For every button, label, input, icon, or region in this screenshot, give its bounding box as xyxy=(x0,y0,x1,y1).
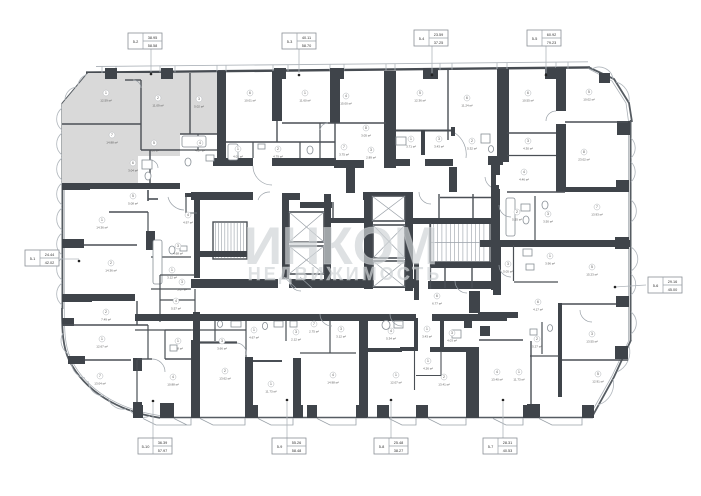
svg-text:12.59 м²: 12.59 м² xyxy=(100,99,111,103)
svg-text:8: 8 xyxy=(583,150,585,154)
svg-text:4.68 м²: 4.68 м² xyxy=(173,252,183,256)
svg-text:5-4: 5-4 xyxy=(419,36,425,41)
svg-text:11.60 м²: 11.60 м² xyxy=(299,99,310,103)
svg-text:4: 4 xyxy=(345,94,347,98)
svg-text:3.71 м²: 3.71 м² xyxy=(406,145,416,149)
svg-text:5: 5 xyxy=(419,91,421,95)
svg-text:45.00: 45.00 xyxy=(668,288,678,292)
svg-text:5-8: 5-8 xyxy=(379,444,385,449)
svg-text:15.23 м²: 15.23 м² xyxy=(586,273,597,277)
svg-text:28.31: 28.31 xyxy=(503,441,513,445)
svg-text:79.23: 79.23 xyxy=(547,41,557,45)
svg-text:3: 3 xyxy=(507,262,509,266)
svg-text:14.98 м²: 14.98 м² xyxy=(327,381,338,385)
svg-text:5-10: 5-10 xyxy=(142,444,151,449)
svg-text:38.95: 38.95 xyxy=(148,36,158,40)
svg-text:НЕДВИЖИМОСТЬ: НЕДВИЖИМОСТЬ xyxy=(248,264,442,284)
svg-text:7: 7 xyxy=(99,374,101,378)
svg-text:4: 4 xyxy=(332,373,334,377)
svg-text:1: 1 xyxy=(177,339,179,343)
svg-text:2: 2 xyxy=(224,369,226,373)
svg-text:2: 2 xyxy=(443,375,445,379)
svg-text:11.73 м²: 11.73 м² xyxy=(265,390,276,394)
svg-text:11.09 м²: 11.09 м² xyxy=(152,104,163,108)
svg-text:5-5: 5-5 xyxy=(532,36,538,41)
svg-text:4.01 м²: 4.01 м² xyxy=(233,155,243,159)
svg-text:10.02 м²: 10.02 м² xyxy=(583,98,594,102)
svg-text:3: 3 xyxy=(177,244,179,248)
svg-text:13.41 м²: 13.41 м² xyxy=(438,383,449,387)
svg-text:5.07 м²: 5.07 м² xyxy=(177,288,187,292)
svg-text:4.17 м²: 4.17 м² xyxy=(533,308,543,312)
svg-text:7: 7 xyxy=(313,322,315,326)
svg-text:4.87 м²: 4.87 м² xyxy=(195,149,205,153)
svg-text:2: 2 xyxy=(471,139,473,143)
svg-text:2.75 м²: 2.75 м² xyxy=(309,330,319,334)
svg-text:3.75 м²: 3.75 м² xyxy=(339,153,349,157)
svg-text:3: 3 xyxy=(370,148,372,152)
svg-text:23.02 м²: 23.02 м² xyxy=(578,158,589,162)
svg-text:1: 1 xyxy=(270,382,272,386)
svg-text:6: 6 xyxy=(537,300,539,304)
svg-text:3.43 м²: 3.43 м² xyxy=(434,145,444,149)
svg-text:5.57 м²: 5.57 м² xyxy=(171,307,181,311)
svg-text:5.55 м²: 5.55 м² xyxy=(512,218,522,222)
svg-text:5.08 м²: 5.08 м² xyxy=(128,202,138,206)
svg-text:60.92: 60.92 xyxy=(547,33,557,37)
svg-text:58.70: 58.70 xyxy=(302,44,312,48)
svg-text:6: 6 xyxy=(527,91,529,95)
svg-text:3.12 м²: 3.12 м² xyxy=(336,335,346,339)
svg-text:2: 2 xyxy=(157,96,159,100)
svg-text:2: 2 xyxy=(105,310,107,314)
svg-text:13.62 м²: 13.62 м² xyxy=(219,377,230,381)
svg-text:55.26: 55.26 xyxy=(292,441,302,445)
svg-text:4.79 м²: 4.79 м² xyxy=(273,155,283,159)
svg-text:3: 3 xyxy=(181,280,183,284)
svg-text:3.50 м²: 3.50 м² xyxy=(543,220,553,224)
svg-text:12.07 м²: 12.07 м² xyxy=(390,381,401,385)
svg-text:14.36 м²: 14.36 м² xyxy=(96,226,107,230)
svg-text:40.11: 40.11 xyxy=(302,36,311,40)
svg-text:1: 1 xyxy=(171,268,173,272)
svg-text:5-1: 5-1 xyxy=(30,256,36,261)
svg-text:40.53: 40.53 xyxy=(503,449,513,453)
svg-text:5-9: 5-9 xyxy=(277,444,283,449)
svg-text:7.49 м²: 7.49 м² xyxy=(101,318,111,322)
svg-text:3.96 м²: 3.96 м² xyxy=(545,262,555,266)
svg-text:3: 3 xyxy=(198,97,200,101)
svg-text:3.43 м²: 3.43 м² xyxy=(422,335,432,339)
svg-text:5-2: 5-2 xyxy=(133,39,139,44)
svg-text:10.01 м²: 10.01 м² xyxy=(244,99,255,103)
svg-text:4.30 м²: 4.30 м² xyxy=(523,147,533,151)
svg-text:4.46 м²: 4.46 м² xyxy=(519,178,529,182)
svg-text:3.04 м²: 3.04 м² xyxy=(128,169,138,173)
svg-text:5-3: 5-3 xyxy=(287,39,293,44)
svg-text:4: 4 xyxy=(496,370,498,374)
svg-text:2.12 м²: 2.12 м² xyxy=(291,338,301,342)
svg-text:3: 3 xyxy=(547,212,549,216)
svg-text:4: 4 xyxy=(199,141,201,145)
svg-text:36.39: 36.39 xyxy=(158,441,168,445)
svg-text:2: 2 xyxy=(516,210,518,214)
svg-text:3.12 м²: 3.12 м² xyxy=(167,276,177,280)
svg-text:5.86 м²: 5.86 м² xyxy=(149,149,159,153)
svg-text:2: 2 xyxy=(110,261,112,265)
svg-text:2.89 м²: 2.89 м² xyxy=(366,156,376,160)
svg-text:1: 1 xyxy=(253,328,255,332)
svg-text:5.27 м²: 5.27 м² xyxy=(532,345,542,349)
svg-text:1: 1 xyxy=(105,91,107,95)
svg-text:1: 1 xyxy=(101,218,103,222)
svg-text:4.26 м²: 4.26 м² xyxy=(423,367,433,371)
svg-text:12.91 м²: 12.91 м² xyxy=(592,380,603,384)
svg-text:3: 3 xyxy=(295,330,297,334)
svg-text:5: 5 xyxy=(597,372,599,376)
svg-text:3: 3 xyxy=(451,331,453,335)
svg-text:5.05 м²: 5.05 м² xyxy=(503,270,513,274)
svg-text:24.44: 24.44 xyxy=(45,253,55,257)
svg-text:38.27: 38.27 xyxy=(394,449,404,453)
svg-text:5: 5 xyxy=(591,265,593,269)
svg-text:14.88 м²: 14.88 м² xyxy=(106,141,117,145)
svg-text:6: 6 xyxy=(436,294,438,298)
svg-text:7: 7 xyxy=(596,205,598,209)
svg-text:15.00 м²: 15.00 м² xyxy=(340,102,351,106)
svg-text:6: 6 xyxy=(249,91,251,95)
svg-text:3.66 м²: 3.66 м² xyxy=(217,347,227,351)
svg-text:4: 4 xyxy=(172,375,174,379)
svg-text:13.40 м²: 13.40 м² xyxy=(491,378,502,382)
svg-text:1: 1 xyxy=(518,370,520,374)
svg-text:5: 5 xyxy=(153,141,155,145)
svg-text:25.48: 25.48 xyxy=(394,441,404,445)
svg-text:4.97 м²: 4.97 м² xyxy=(183,221,193,225)
svg-text:4: 4 xyxy=(390,329,392,333)
svg-text:1: 1 xyxy=(427,359,429,363)
svg-text:3: 3 xyxy=(340,327,342,331)
svg-text:3: 3 xyxy=(591,332,593,336)
svg-text:8: 8 xyxy=(365,126,367,130)
svg-text:3: 3 xyxy=(221,339,223,343)
svg-text:5.02 м²: 5.02 м² xyxy=(194,105,204,109)
svg-text:4: 4 xyxy=(175,299,177,303)
svg-text:2: 2 xyxy=(536,337,538,341)
svg-text:4: 4 xyxy=(187,213,189,217)
svg-text:3.05 м²: 3.05 м² xyxy=(361,134,371,138)
svg-text:3: 3 xyxy=(527,139,529,143)
svg-text:1: 1 xyxy=(549,254,551,258)
svg-text:6: 6 xyxy=(132,161,134,165)
svg-text:4.67 м²: 4.67 м² xyxy=(249,336,259,340)
svg-text:11.24 м²: 11.24 м² xyxy=(461,104,472,108)
svg-text:1: 1 xyxy=(426,327,428,331)
svg-text:29.16: 29.16 xyxy=(668,280,678,284)
svg-text:1: 1 xyxy=(395,373,397,377)
svg-text:1: 1 xyxy=(410,137,412,141)
svg-text:13.04 м²: 13.04 м² xyxy=(94,382,105,386)
svg-text:13.93 м²: 13.93 м² xyxy=(591,213,602,217)
svg-text:5: 5 xyxy=(132,194,134,198)
svg-text:14.36 м²: 14.36 м² xyxy=(105,269,116,273)
svg-text:4.03 м²: 4.03 м² xyxy=(447,339,457,343)
svg-text:13.55 м²: 13.55 м² xyxy=(586,340,597,344)
svg-text:1: 1 xyxy=(304,91,306,95)
svg-text:58.48: 58.48 xyxy=(292,449,302,453)
svg-text:1: 1 xyxy=(237,147,239,151)
svg-text:37.25: 37.25 xyxy=(434,41,444,45)
svg-text:10.55 м²: 10.55 м² xyxy=(522,99,533,103)
svg-text:12.67 м²: 12.67 м² xyxy=(96,345,107,349)
svg-text:5-6: 5-6 xyxy=(653,283,659,288)
svg-text:12.36 м²: 12.36 м² xyxy=(414,99,425,103)
svg-text:5.32 м²: 5.32 м² xyxy=(467,147,477,151)
svg-text:5: 5 xyxy=(588,90,590,94)
svg-text:10.88 м²: 10.88 м² xyxy=(167,383,178,387)
svg-text:7: 7 xyxy=(111,133,113,137)
svg-text:42.02: 42.02 xyxy=(45,261,55,265)
svg-text:11.73 м²: 11.73 м² xyxy=(513,378,524,382)
svg-text:5-7: 5-7 xyxy=(488,444,494,449)
svg-text:7: 7 xyxy=(343,145,345,149)
svg-text:2: 2 xyxy=(277,147,279,151)
svg-text:6: 6 xyxy=(466,96,468,100)
svg-text:6.77 м²: 6.77 м² xyxy=(432,302,442,306)
svg-text:58.58: 58.58 xyxy=(148,44,158,48)
svg-text:1: 1 xyxy=(101,337,103,341)
svg-text:5.34 м²: 5.34 м² xyxy=(386,337,396,341)
svg-text:3: 3 xyxy=(438,137,440,141)
svg-text:23.59: 23.59 xyxy=(434,33,444,37)
svg-text:4: 4 xyxy=(523,170,525,174)
svg-text:57.97: 57.97 xyxy=(158,449,168,453)
